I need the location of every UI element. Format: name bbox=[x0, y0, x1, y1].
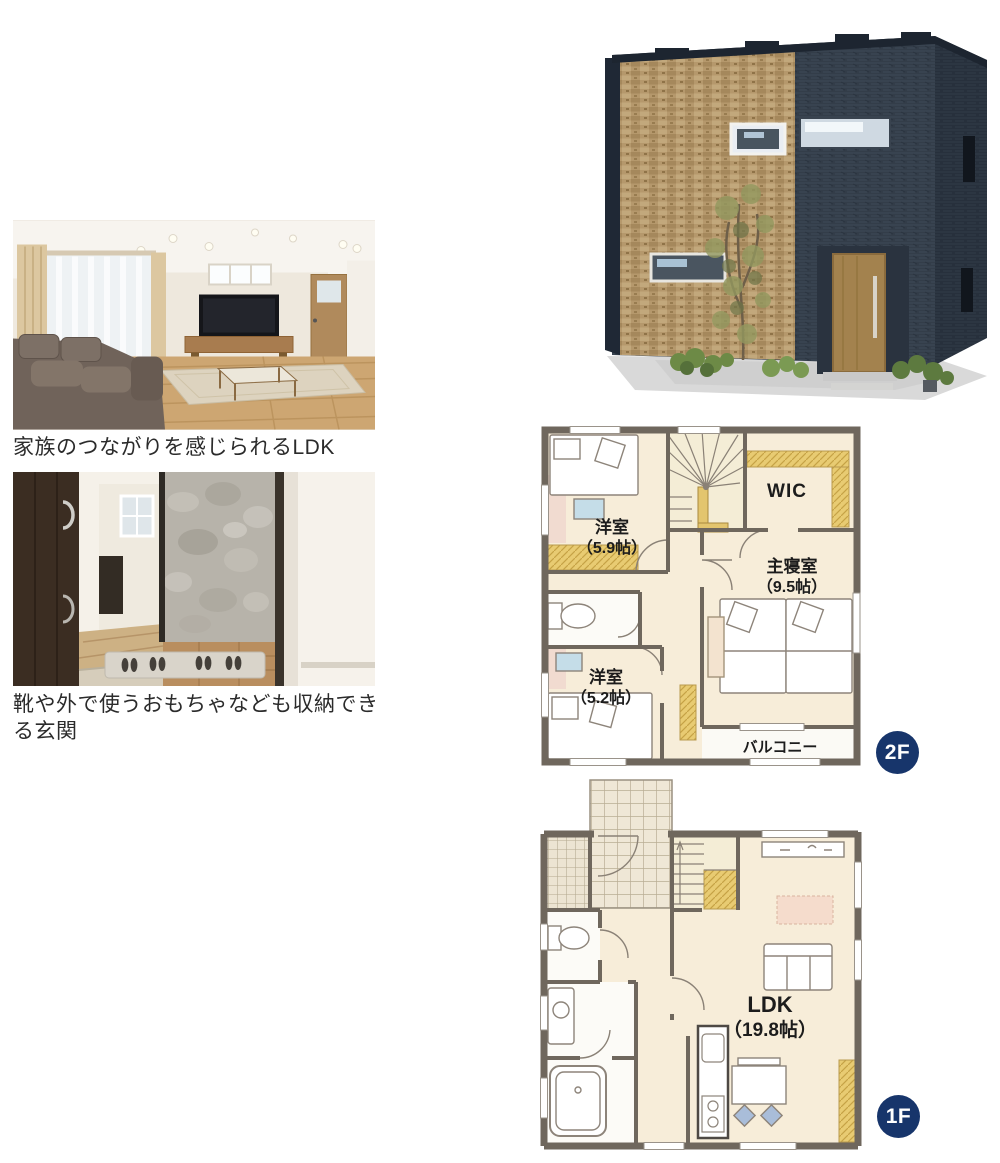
entrance-photo-art bbox=[13, 472, 375, 686]
room-label-balcony: バルコニー bbox=[743, 739, 818, 756]
room-label-ldk: LDK bbox=[747, 992, 792, 1017]
floor-plan-2f: 洋室 （5.9帖） WIC 主寝室 （9.5帖） 洋室 （5.2帖） バルコニー bbox=[540, 425, 862, 767]
floor-plan-1f: LDK （19.8帖） bbox=[540, 778, 862, 1150]
floor-badge-2f: 2F bbox=[876, 731, 919, 774]
entrance-porch-tiles bbox=[590, 780, 672, 908]
shoe-closet bbox=[546, 836, 588, 908]
brochure-page: 家族のつながりを感じられるLDK bbox=[0, 0, 1000, 1163]
entrance-photo bbox=[13, 472, 375, 686]
room-label-wic: WIC bbox=[767, 481, 807, 502]
house-brick-panel bbox=[620, 48, 795, 360]
house-side-wall bbox=[935, 36, 987, 365]
house-exterior-render bbox=[595, 8, 995, 408]
front-door bbox=[833, 254, 885, 372]
room-label-master: 主寝室 bbox=[767, 556, 818, 576]
living-room-photo bbox=[13, 220, 375, 430]
room-size-bedroom1: （5.9帖） bbox=[577, 538, 647, 557]
living-room-photo-art bbox=[13, 220, 375, 430]
rug bbox=[777, 896, 833, 924]
room-size-bedroom2: （5.2帖） bbox=[571, 688, 641, 707]
entrance-caption: 靴や外で使うおもちゃなども収納できる玄関 bbox=[13, 691, 391, 745]
living-room-caption: 家族のつながりを感じられるLDK bbox=[13, 434, 391, 461]
room-label-bedroom2: 洋室 bbox=[589, 667, 623, 687]
sofa bbox=[764, 944, 832, 990]
room-label-bedroom1: 洋室 bbox=[595, 517, 629, 537]
dining-table bbox=[732, 1066, 786, 1104]
floor-badge-1f: 1F bbox=[877, 1095, 920, 1138]
room-size-ldk: （19.8帖） bbox=[723, 1018, 817, 1041]
room-size-master: （9.5帖） bbox=[757, 577, 827, 596]
